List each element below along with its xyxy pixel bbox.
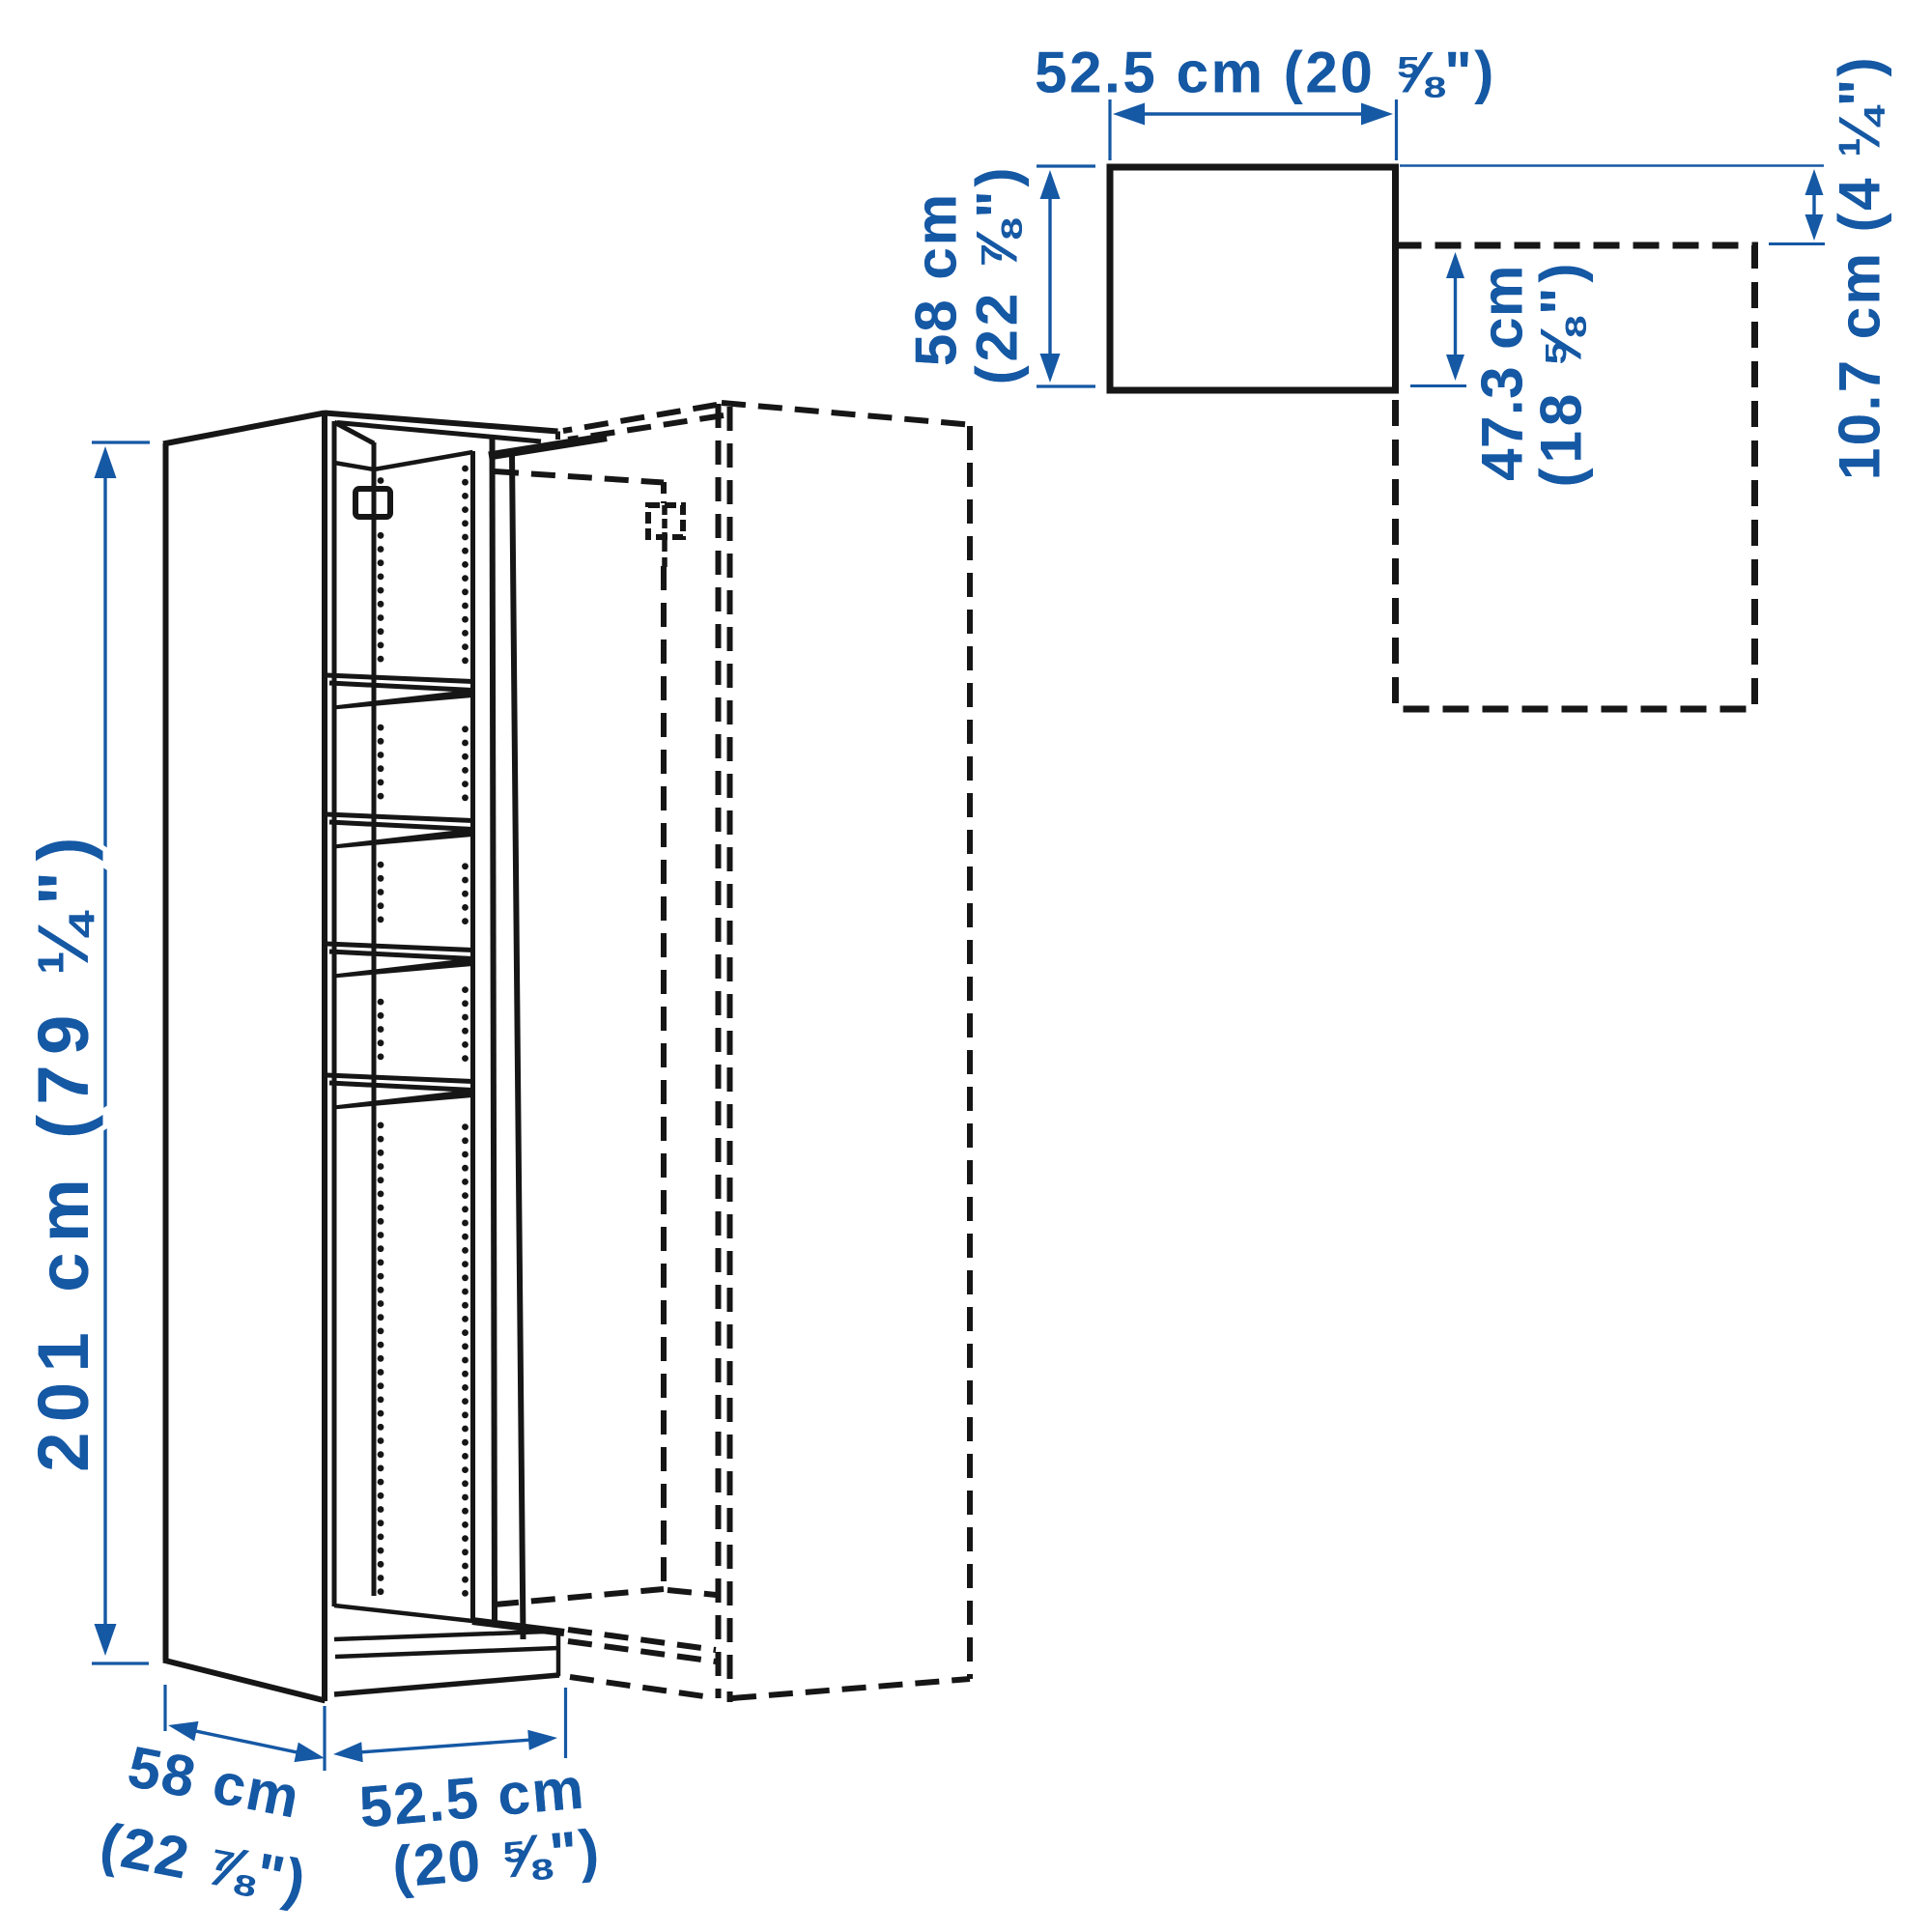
svg-text:(18 ⅝"): (18 ⅝") (1528, 259, 1593, 488)
svg-text:10.7 cm (4 ¼"): 10.7 cm (4 ¼") (1827, 55, 1891, 480)
svg-text:47.3 cm: 47.3 cm (1469, 265, 1534, 481)
svg-text:(22 ⅞"): (22 ⅞") (964, 164, 1029, 384)
svg-text:201 cm (79 ¼"): 201 cm (79 ¼") (23, 827, 103, 1472)
svg-text:58 cm: 58 cm (903, 192, 968, 366)
svg-text:52.5 cm (20 ⅝"): 52.5 cm (20 ⅝") (1035, 40, 1496, 104)
